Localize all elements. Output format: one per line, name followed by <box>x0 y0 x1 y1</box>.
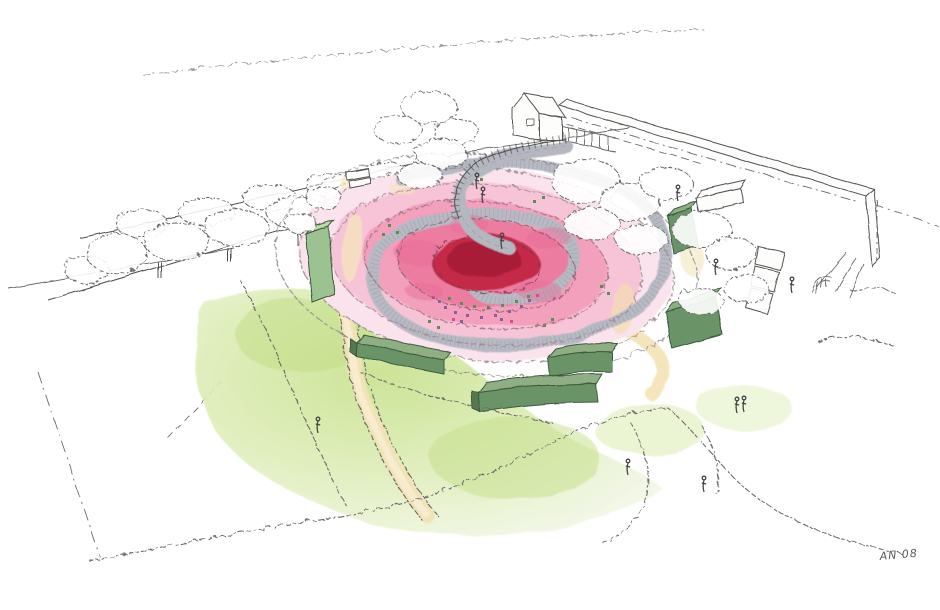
shrub <box>704 236 756 268</box>
avenue-tree <box>203 208 267 244</box>
lawn-bright-patch <box>595 404 705 456</box>
avenue-tree <box>85 232 145 272</box>
concept-sketch-page: AN 08 <box>0 0 940 610</box>
avenue-tree <box>143 221 207 259</box>
shrub <box>284 212 316 232</box>
shrub <box>372 114 420 142</box>
shrub <box>396 161 440 187</box>
hedge-block-arc-c <box>548 344 618 376</box>
mottle-blob <box>526 227 570 249</box>
mottle-blob <box>518 281 562 303</box>
landscape-perspective-sketch: AN 08 <box>0 0 940 610</box>
shrub <box>614 223 666 253</box>
shrub <box>678 287 722 313</box>
shrub <box>723 273 767 301</box>
shrub <box>304 185 340 207</box>
lawn-bright-patch <box>697 386 793 430</box>
shrub <box>639 166 691 198</box>
shrub <box>562 206 618 238</box>
